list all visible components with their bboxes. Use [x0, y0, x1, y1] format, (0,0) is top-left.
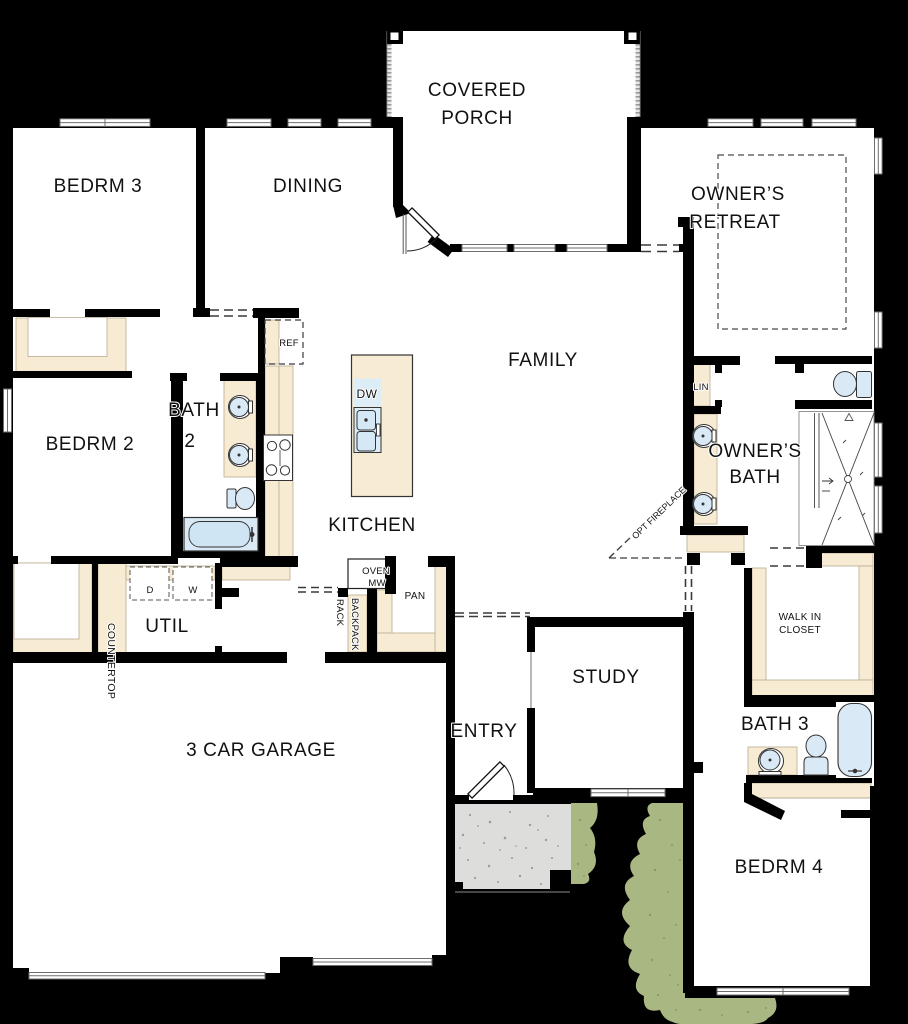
- svg-text:BACKPACK: BACKPACK: [349, 598, 360, 651]
- svg-text:KITCHEN: KITCHEN: [328, 515, 416, 536]
- svg-text:PAN: PAN: [405, 591, 426, 602]
- svg-text:STUDY: STUDY: [572, 667, 639, 688]
- svg-text:BEDRM 4: BEDRM 4: [735, 857, 824, 878]
- svg-text:WALK IN: WALK IN: [779, 612, 822, 623]
- svg-text:D: D: [146, 585, 153, 596]
- svg-text:COUNTERTOP: COUNTERTOP: [105, 623, 117, 699]
- svg-text:UTIL: UTIL: [145, 616, 189, 637]
- svg-text:DW: DW: [357, 387, 378, 401]
- svg-text:LIN: LIN: [693, 382, 708, 393]
- svg-text:PORCH: PORCH: [441, 108, 513, 129]
- svg-text:W: W: [188, 585, 197, 596]
- svg-text:BATH: BATH: [729, 467, 780, 488]
- svg-text:DINING: DINING: [273, 176, 343, 197]
- svg-text:FAMILY: FAMILY: [508, 350, 578, 371]
- svg-text:3 CAR GARAGE: 3 CAR GARAGE: [186, 740, 336, 761]
- svg-text:RACK: RACK: [334, 599, 345, 627]
- svg-text:2: 2: [184, 431, 195, 452]
- svg-text:BEDRM 3: BEDRM 3: [54, 176, 143, 197]
- svg-text:BATH: BATH: [168, 400, 220, 421]
- svg-text:COVERED: COVERED: [428, 80, 526, 101]
- svg-text:REF: REF: [279, 338, 299, 349]
- svg-text:OVEN: OVEN: [362, 566, 390, 577]
- svg-text:OWNER’S: OWNER’S: [691, 184, 785, 205]
- svg-text:BEDRM 2: BEDRM 2: [46, 434, 135, 455]
- svg-text:BATH 3: BATH 3: [741, 714, 809, 735]
- svg-text:CLOSET: CLOSET: [779, 625, 821, 636]
- svg-text:MW: MW: [368, 578, 385, 589]
- svg-text:OWNER’S: OWNER’S: [708, 441, 801, 462]
- svg-text:RETREAT: RETREAT: [689, 212, 780, 233]
- svg-text:ENTRY: ENTRY: [450, 721, 517, 742]
